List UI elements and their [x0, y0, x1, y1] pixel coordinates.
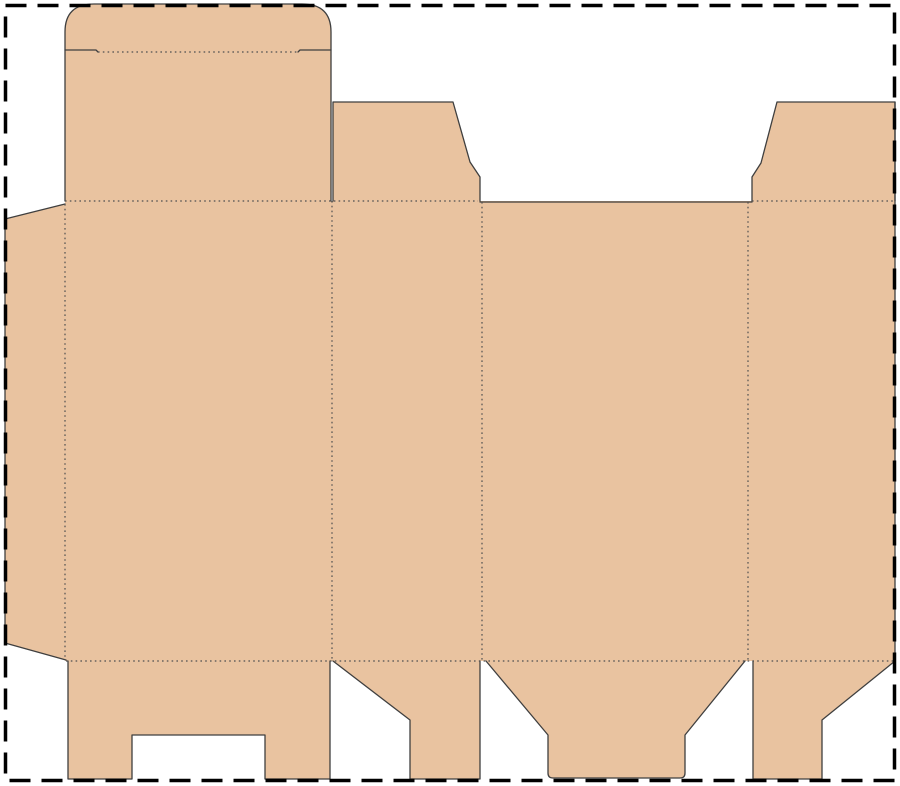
dieline-drawing — [0, 0, 900, 786]
lid-tuck-flap-shape — [65, 4, 331, 201]
main-panels-shape — [65, 201, 895, 661]
dieline-sheet — [0, 0, 900, 786]
glue-flap-shape — [5, 204, 66, 660]
dust-flap-top-right-shape — [752, 102, 895, 201]
